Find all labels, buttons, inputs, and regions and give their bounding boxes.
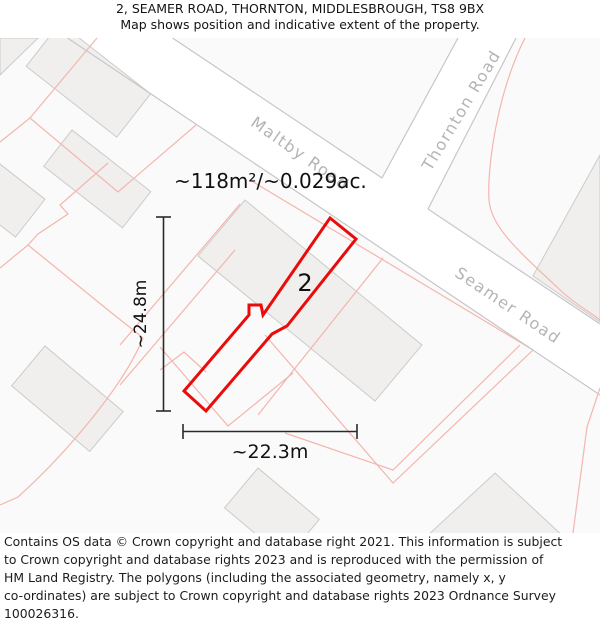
map-header: 2, SEAMER ROAD, THORNTON, MIDDLESBROUGH,…	[0, 0, 600, 38]
footer-line: 100026316.	[4, 605, 600, 623]
footer-line: co-ordinates) are subject to Crown copyr…	[4, 587, 600, 605]
copyright-footer: Contains OS data © Crown copyright and d…	[0, 533, 600, 625]
property-map: Maltby Road Thornton Road Seamer Road 2 …	[0, 38, 600, 533]
page-title: 2, SEAMER ROAD, THORNTON, MIDDLESBROUGH,…	[0, 0, 600, 17]
area-label: ~118m²/~0.029ac.	[174, 169, 367, 193]
footer-line: to Crown copyright and database rights 2…	[4, 551, 600, 569]
page: 2, SEAMER ROAD, THORNTON, MIDDLESBROUGH,…	[0, 0, 600, 625]
vertical-dimension-label: ~24.8m	[131, 280, 151, 349]
map-canvas[interactable]: Maltby Road Thornton Road Seamer Road 2 …	[0, 38, 600, 533]
page-subtitle: Map shows position and indicative extent…	[0, 17, 600, 33]
footer-line: Contains OS data © Crown copyright and d…	[4, 533, 600, 551]
plot-number-label: 2	[297, 269, 312, 297]
footer-line: HM Land Registry. The polygons (includin…	[4, 569, 600, 587]
horizontal-dimension-label: ~22.3m	[232, 441, 309, 463]
